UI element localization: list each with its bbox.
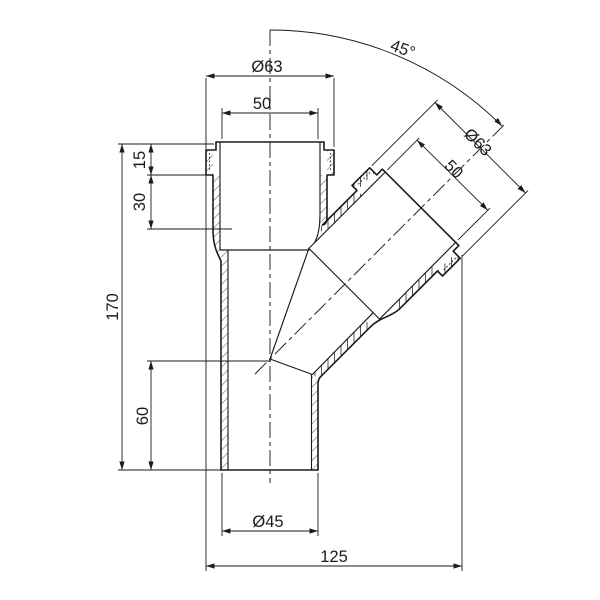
technical-drawing-45deg-branch: Ø63 50 15 30 170 60 Ø45 125 45° Ø63 50 [0, 0, 600, 600]
label-overall-height: 170 [104, 293, 122, 321]
background [0, 0, 600, 600]
label-branch-axis-height: 60 [134, 407, 152, 425]
label-collar-height: 15 [131, 151, 149, 169]
drawing-canvas: Ø63 50 15 30 170 60 Ø45 125 45° Ø63 50 [0, 0, 600, 600]
label-top-socket: 50 [253, 95, 271, 113]
label-pipe-od: Ø45 [252, 513, 283, 531]
label-overall-width: 125 [320, 548, 348, 566]
label-socket-depth: 30 [131, 193, 149, 211]
label-top-od: Ø63 [251, 58, 282, 76]
